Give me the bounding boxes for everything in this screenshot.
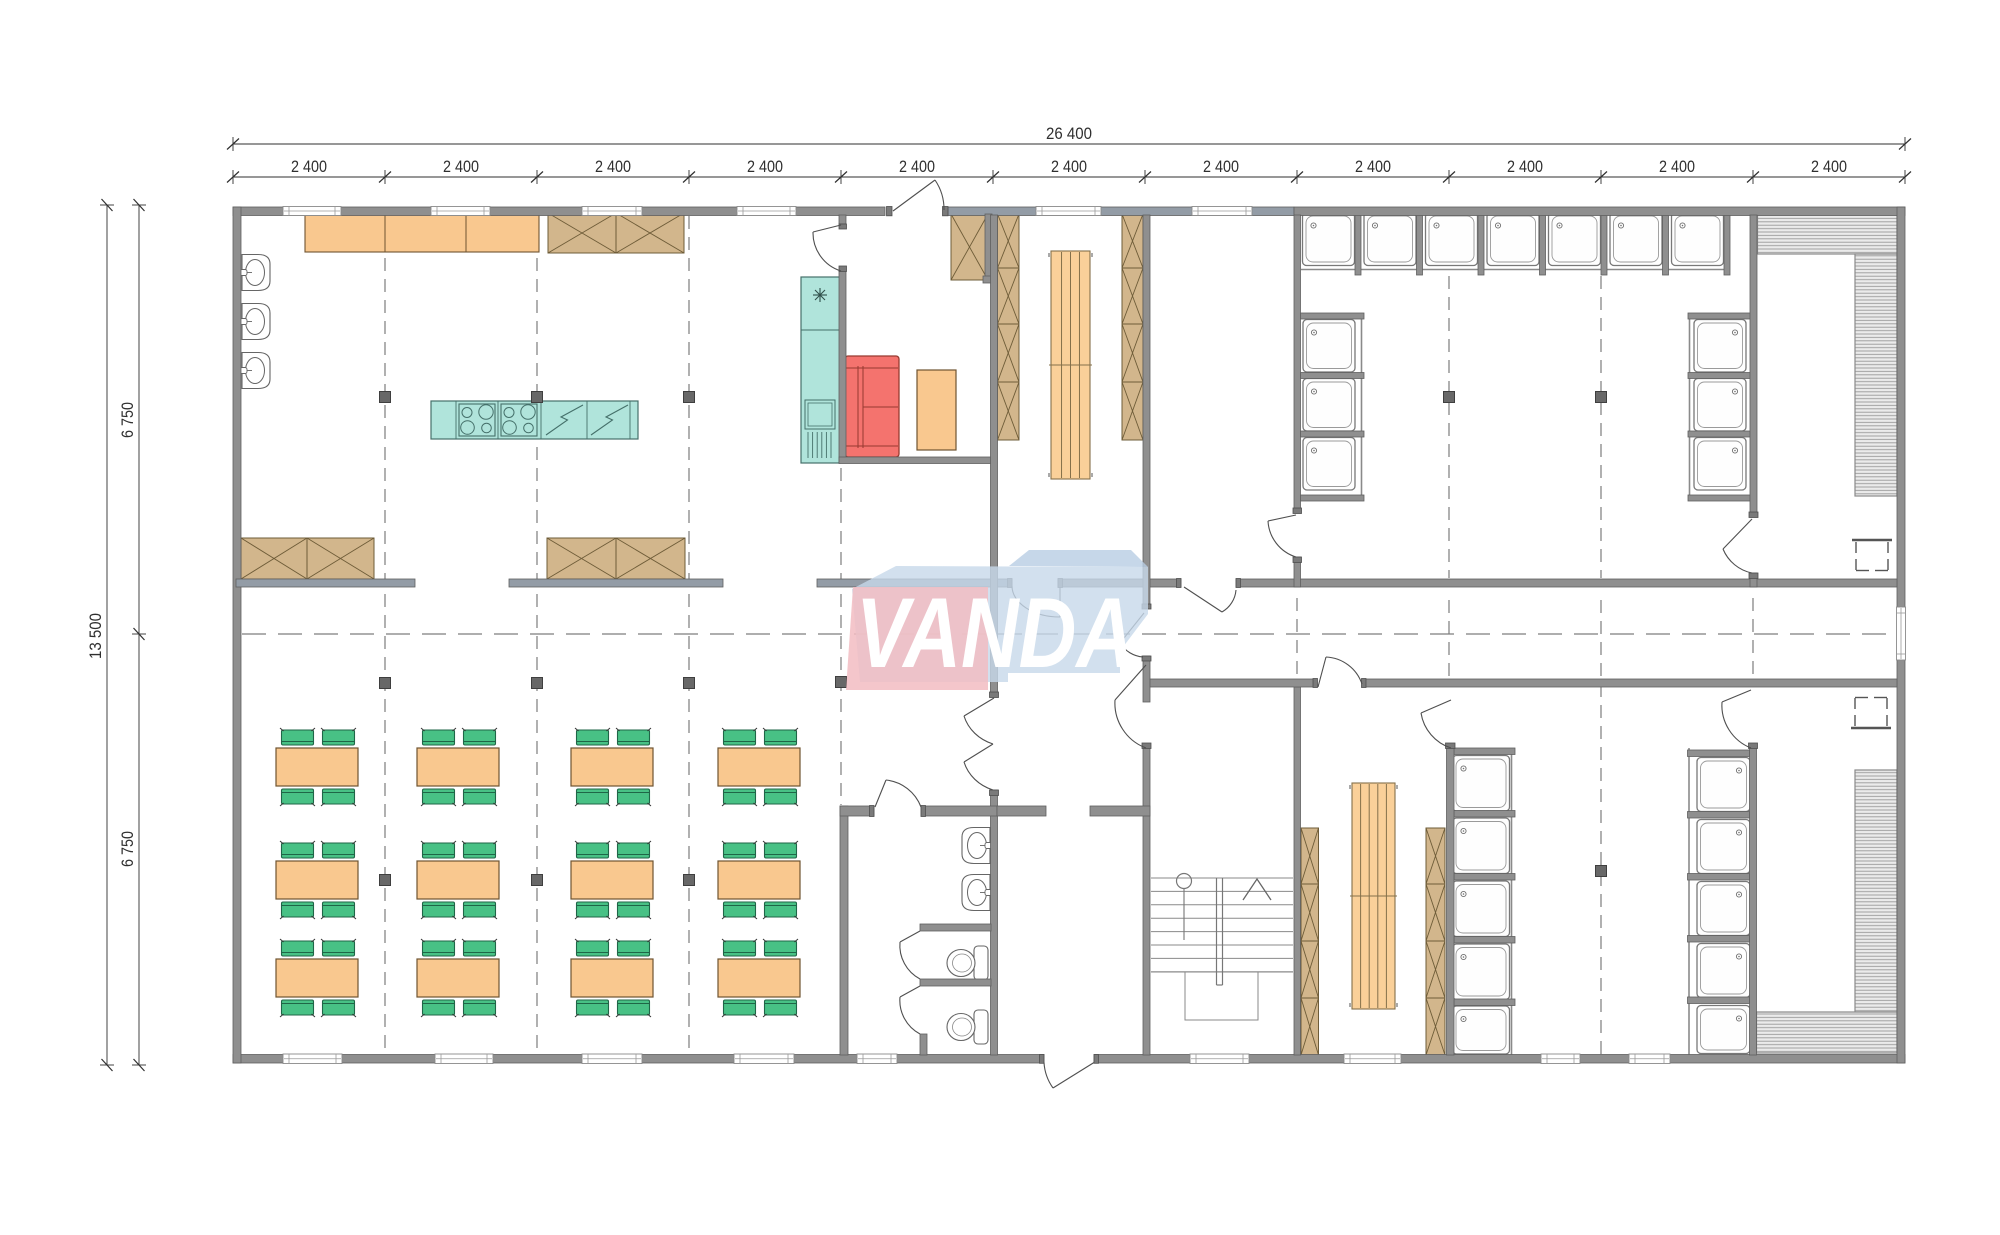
svg-text:2 400: 2 400 xyxy=(595,157,631,176)
svg-text:2 400: 2 400 xyxy=(1507,157,1543,176)
svg-text:2 400: 2 400 xyxy=(1811,157,1847,176)
svg-text:2 400: 2 400 xyxy=(1355,157,1391,176)
svg-text:2 400: 2 400 xyxy=(899,157,935,176)
svg-text:2 400: 2 400 xyxy=(291,157,327,176)
svg-text:2 400: 2 400 xyxy=(747,157,783,176)
svg-text:13 500: 13 500 xyxy=(86,613,105,659)
svg-text:2 400: 2 400 xyxy=(1203,157,1239,176)
svg-text:6 750: 6 750 xyxy=(118,831,137,867)
svg-text:VANDA: VANDA xyxy=(856,577,1134,688)
svg-text:2 400: 2 400 xyxy=(443,157,479,176)
svg-text:26 400: 26 400 xyxy=(1046,124,1092,143)
svg-text:2 400: 2 400 xyxy=(1051,157,1087,176)
svg-text:2 400: 2 400 xyxy=(1659,157,1695,176)
svg-text:6 750: 6 750 xyxy=(118,402,137,438)
